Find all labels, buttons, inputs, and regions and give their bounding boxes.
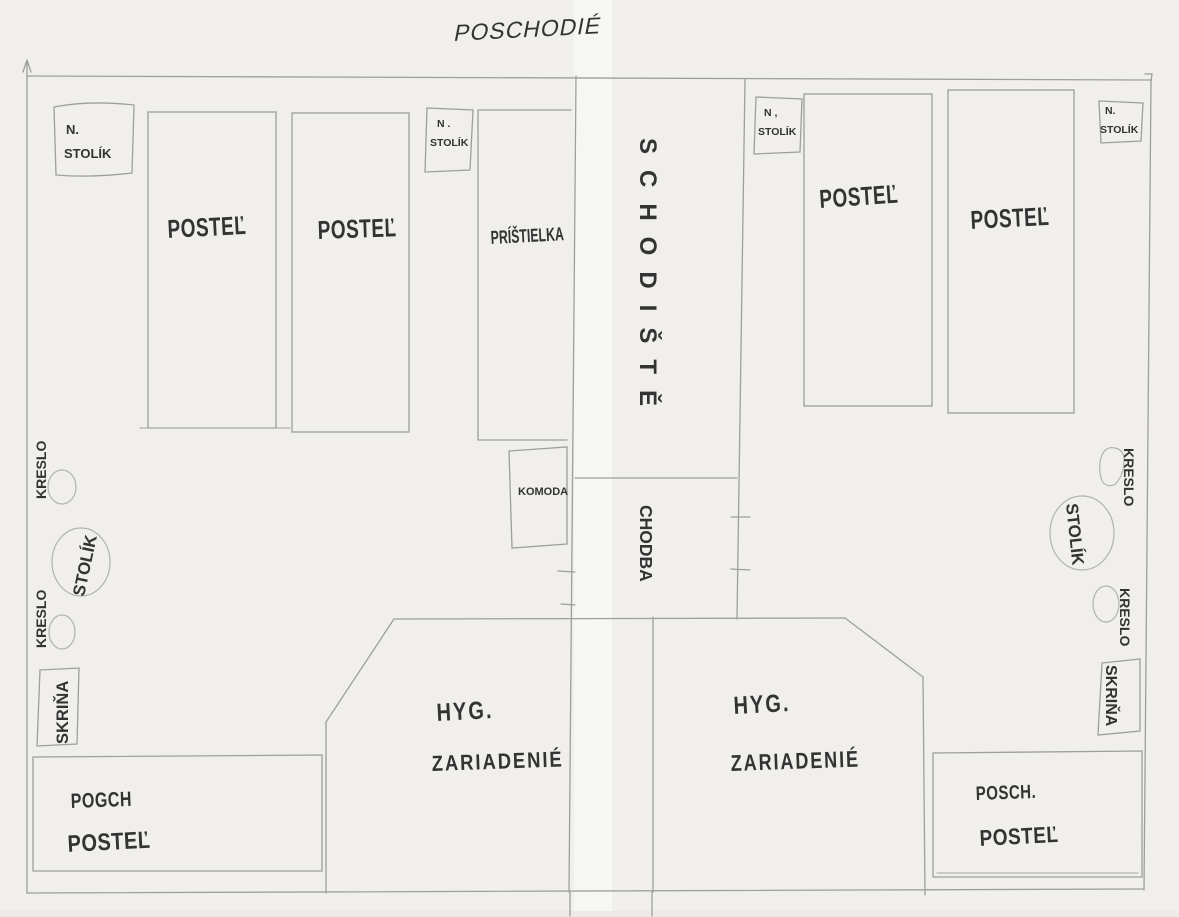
svg-text:SCHODIŠTĚ: SCHODIŠTĚ xyxy=(634,138,662,422)
svg-text:HYG.: HYG. xyxy=(436,696,494,727)
svg-text:SKRIŇA: SKRIŇA xyxy=(1102,665,1121,727)
svg-text:KRESLO: KRESLO xyxy=(33,590,49,648)
svg-text:POSTEĽ: POSTEĽ xyxy=(970,201,1050,235)
svg-text:POSTEĽ: POSTEĽ xyxy=(818,179,899,214)
svg-text:STOLÍK: STOLÍK xyxy=(1100,123,1139,136)
svg-text:N .: N . xyxy=(437,118,451,130)
svg-text:KRESLO: KRESLO xyxy=(1117,588,1133,646)
svg-text:KOMODA: KOMODA xyxy=(518,486,568,498)
svg-text:SKRIŇA: SKRIŇA xyxy=(53,681,72,744)
svg-text:HYG.: HYG. xyxy=(733,689,791,720)
svg-text:N.: N. xyxy=(66,122,79,137)
svg-text:N ,: N , xyxy=(764,107,778,119)
svg-text:STOLÍK: STOLÍK xyxy=(758,125,797,138)
svg-text:POSTEĽ: POSTEĽ xyxy=(67,826,151,857)
svg-text:STOLÍK: STOLÍK xyxy=(430,136,469,149)
svg-text:POSTEĽ: POSTEĽ xyxy=(167,210,247,244)
svg-text:POSTEĽ: POSTEĽ xyxy=(979,822,1059,851)
svg-text:POSCH.: POSCH. xyxy=(975,780,1036,805)
svg-text:ZARIADENIÉ: ZARIADENIÉ xyxy=(431,747,564,776)
svg-text:CHODBA: CHODBA xyxy=(636,505,656,582)
svg-text:KRESLO: KRESLO xyxy=(33,441,49,499)
svg-text:STOLÍK: STOLÍK xyxy=(64,146,112,161)
svg-text:KRESLO: KRESLO xyxy=(1121,448,1137,506)
svg-text:N.: N. xyxy=(1105,105,1116,117)
svg-text:ZARIADENIÉ: ZARIADENIÉ xyxy=(730,747,860,777)
svg-text:POSTEĽ: POSTEĽ xyxy=(317,212,397,244)
svg-text:POGCH: POGCH xyxy=(70,787,132,813)
